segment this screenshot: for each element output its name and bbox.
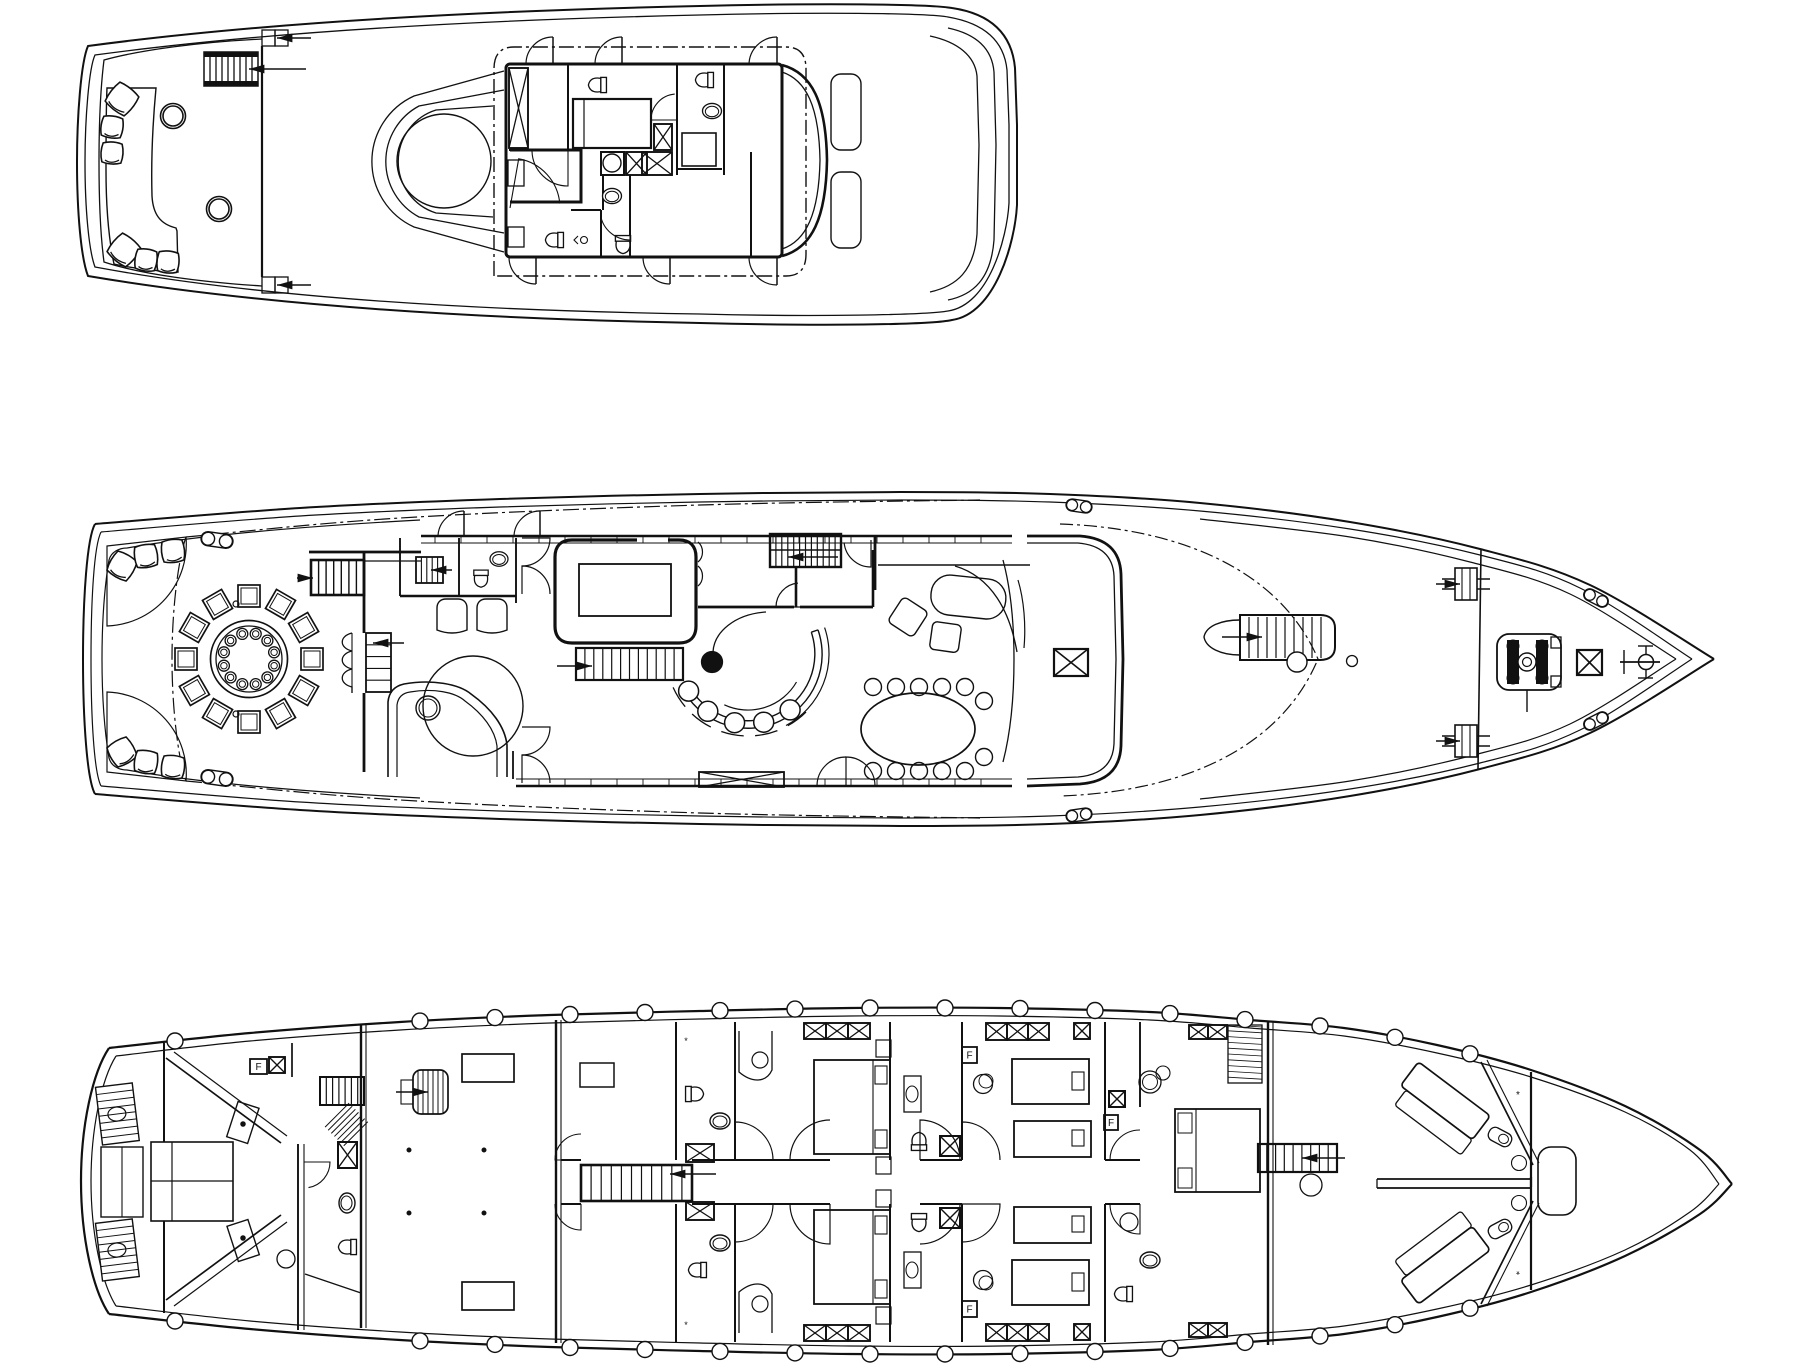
svg-text:*: * (1516, 1090, 1520, 1101)
svg-text:F: F (966, 1051, 972, 1062)
svg-text:F: F (255, 1062, 261, 1073)
svg-text:*: * (1516, 1265, 1520, 1276)
svg-text:F: F (1108, 1118, 1114, 1129)
svg-text:*: * (684, 1036, 688, 1046)
svg-text:F: F (966, 1305, 972, 1316)
svg-text:*: * (684, 1320, 688, 1330)
